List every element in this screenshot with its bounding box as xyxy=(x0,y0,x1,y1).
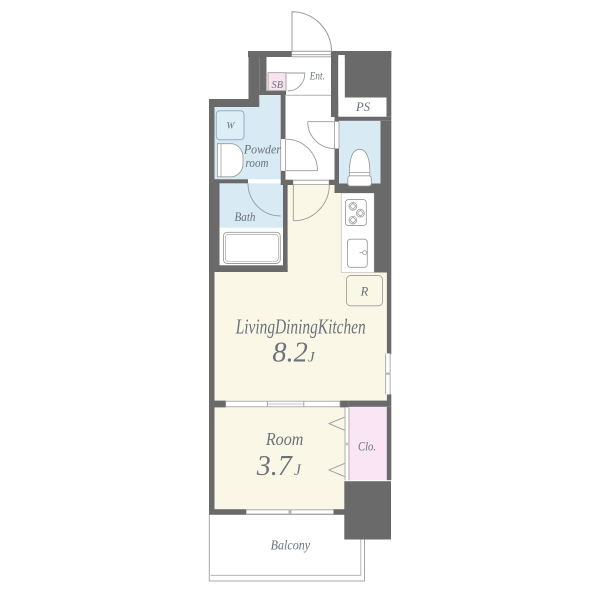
svg-text:room: room xyxy=(246,156,269,170)
svg-text:Clo.: Clo. xyxy=(358,439,376,454)
svg-text:LivingDiningKitchen: LivingDiningKitchen xyxy=(235,314,366,338)
svg-text:PS: PS xyxy=(355,100,371,114)
svg-text:R: R xyxy=(360,285,369,299)
svg-text:3.7: 3.7 xyxy=(256,451,293,482)
svg-text:Bath: Bath xyxy=(235,209,256,224)
svg-text:Balcony: Balcony xyxy=(271,539,311,554)
svg-text:Ent.: Ent. xyxy=(309,71,325,83)
svg-text:SB: SB xyxy=(272,79,284,91)
svg-text:J: J xyxy=(294,462,302,479)
svg-text:W: W xyxy=(227,122,236,132)
svg-text:Room: Room xyxy=(265,429,303,449)
svg-text:Powder: Powder xyxy=(243,143,281,157)
svg-text:8.2: 8.2 xyxy=(272,338,307,369)
